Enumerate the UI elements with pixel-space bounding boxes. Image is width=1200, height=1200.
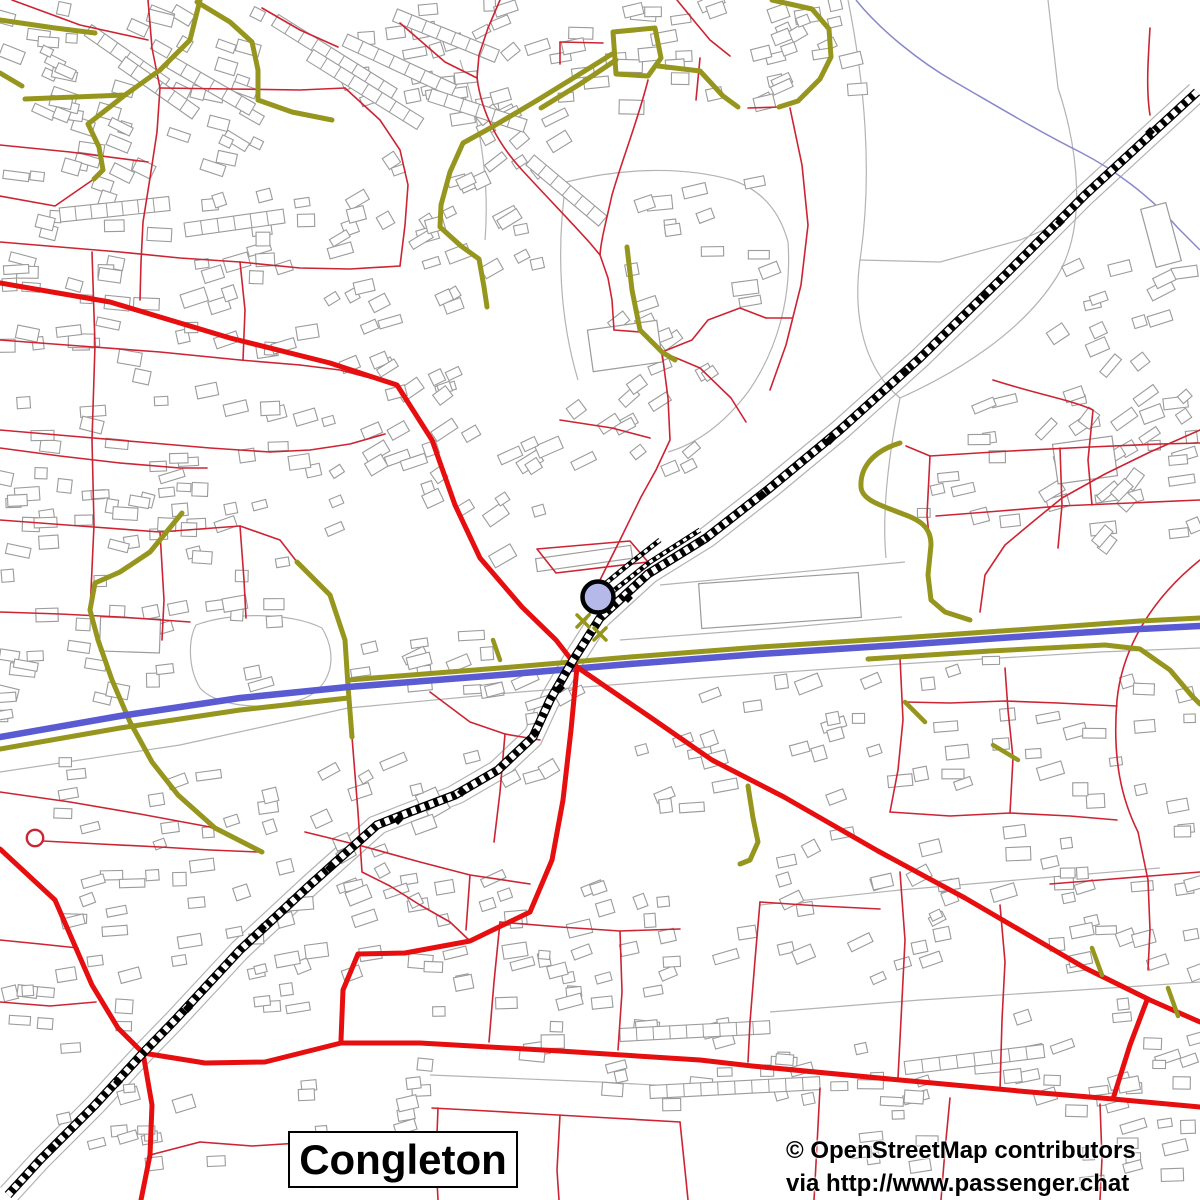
attribution-line-1: © OpenStreetMap contributors [786, 1134, 1136, 1167]
roundabout [27, 830, 43, 846]
place-label: Congleton [299, 1139, 507, 1181]
railway-layer [8, 92, 1197, 1195]
junctions-layer [27, 830, 43, 846]
map-viewport[interactable]: Congleton © OpenStreetMap contributors v… [0, 0, 1200, 1200]
roads-primary-layer [0, 283, 1200, 1200]
map-attribution: © OpenStreetMap contributors via http://… [786, 1134, 1136, 1200]
place-label-box: Congleton [288, 1131, 518, 1188]
attribution-line-2: via http://www.passenger.chat [786, 1167, 1136, 1200]
map-canvas[interactable] [0, 0, 1200, 1200]
marker-layer [583, 582, 614, 613]
roads-b-layer [0, 0, 970, 864]
station-marker[interactable] [583, 582, 614, 613]
railway-line [8, 92, 1197, 1195]
